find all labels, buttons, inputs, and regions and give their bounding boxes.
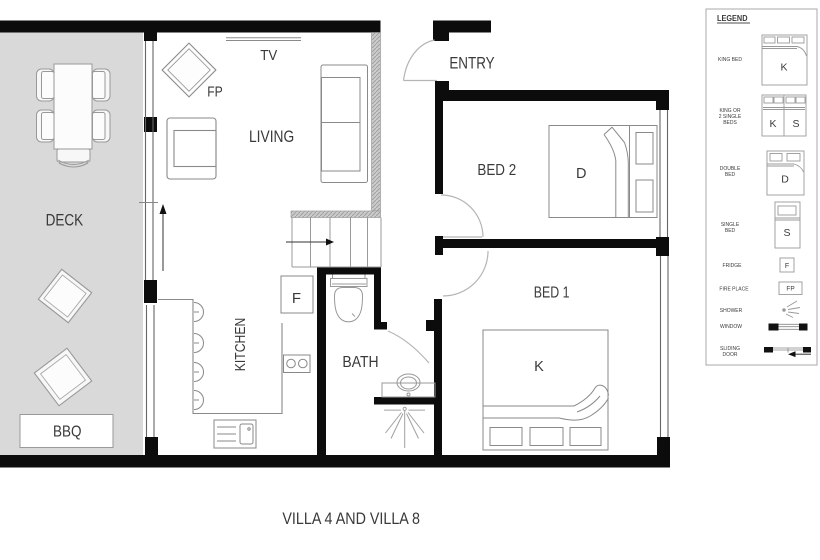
svg-text:F: F bbox=[292, 290, 301, 307]
svg-text:K: K bbox=[780, 62, 787, 74]
svg-text:SHOWER: SHOWER bbox=[720, 308, 743, 314]
svg-text:BED: BED bbox=[725, 172, 736, 178]
svg-text:LIVING: LIVING bbox=[249, 128, 294, 146]
svg-text:DOOR: DOOR bbox=[723, 352, 738, 358]
svg-text:LEGEND: LEGEND bbox=[717, 13, 748, 23]
svg-text:BED 2: BED 2 bbox=[477, 162, 516, 179]
svg-text:ENTRY: ENTRY bbox=[449, 55, 494, 73]
svg-text:BEDS: BEDS bbox=[723, 120, 737, 126]
svg-text:FP: FP bbox=[786, 286, 794, 293]
svg-text:BATH: BATH bbox=[342, 354, 378, 371]
svg-text:DECK: DECK bbox=[46, 212, 84, 230]
svg-text:BED: BED bbox=[725, 228, 736, 234]
svg-text:KING BED: KING BED bbox=[718, 57, 742, 63]
svg-text:BBQ: BBQ bbox=[53, 424, 82, 441]
svg-text:VILLA 4 AND VILLA 8: VILLA 4 AND VILLA 8 bbox=[282, 510, 420, 528]
svg-text:S: S bbox=[792, 118, 799, 130]
svg-text:F: F bbox=[785, 263, 789, 270]
svg-text:FRIDGE: FRIDGE bbox=[723, 263, 743, 269]
svg-text:K: K bbox=[769, 118, 776, 130]
svg-text:TV: TV bbox=[260, 48, 277, 64]
svg-text:K: K bbox=[534, 359, 544, 375]
svg-text:WINDOW: WINDOW bbox=[720, 324, 742, 330]
svg-text:S: S bbox=[783, 227, 790, 239]
svg-text:BED 1: BED 1 bbox=[534, 285, 570, 302]
svg-text:KITCHEN: KITCHEN bbox=[232, 318, 249, 372]
svg-text:FIRE PLACE: FIRE PLACE bbox=[719, 287, 749, 293]
svg-text:FP: FP bbox=[207, 84, 223, 101]
svg-text:D: D bbox=[781, 174, 789, 186]
svg-text:D: D bbox=[576, 166, 586, 182]
